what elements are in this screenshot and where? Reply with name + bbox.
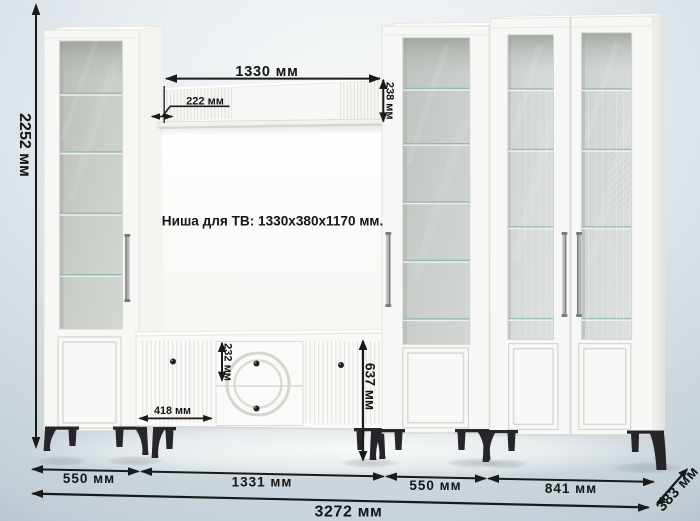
svg-text:418 мм: 418 мм: [154, 405, 191, 417]
svg-text:238 мм: 238 мм: [384, 82, 396, 120]
svg-text:841 мм: 841 мм: [545, 481, 597, 496]
svg-text:637 мм: 637 мм: [363, 363, 378, 410]
svg-text:1330 мм: 1330 мм: [235, 64, 298, 80]
svg-text:3272 мм: 3272 мм: [315, 504, 383, 521]
svg-text:222 мм: 222 мм: [186, 96, 224, 108]
svg-text:550 мм: 550 мм: [63, 471, 115, 486]
svg-text:Ниша для ТВ: 1330x380x1170 мм.: Ниша для ТВ: 1330x380x1170 мм.: [162, 214, 383, 229]
svg-text:1331 мм: 1331 мм: [232, 475, 293, 490]
svg-text:232 мм: 232 мм: [222, 343, 234, 381]
svg-text:2252 мм: 2252 мм: [16, 113, 33, 177]
svg-text:550 мм: 550 мм: [409, 478, 461, 493]
